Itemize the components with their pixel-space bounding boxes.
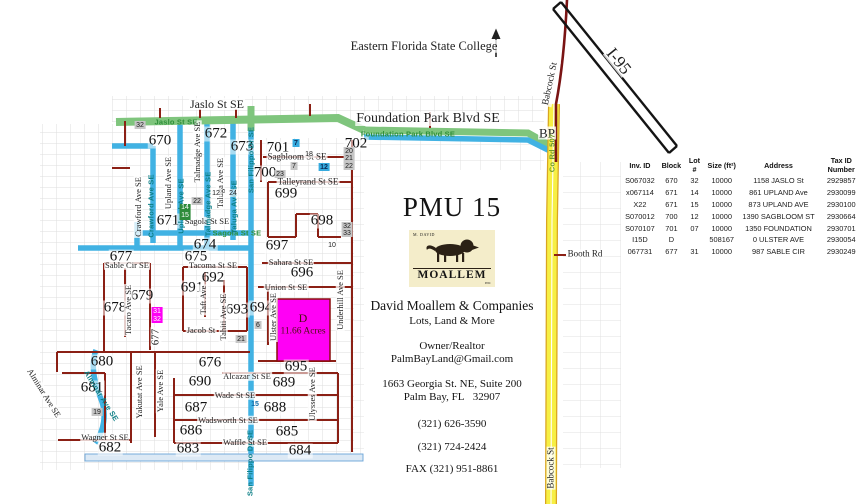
map-flyer-page: { "colors":{"road_red":"#8b2015","road_b… (0, 0, 864, 504)
street-label-tahiti-ave-se: Tahiti Ave SE (219, 293, 228, 342)
street-label-crawford-ave-se: Crawford Ave SE (134, 176, 143, 238)
table-cell: 1158 JASLO St (738, 175, 818, 187)
table-row: S07001270012100001390 SAGBLOOM ST2930664 (621, 210, 864, 222)
table-cell: S067032 (621, 175, 659, 187)
lot-marker-33: 33 (342, 229, 353, 237)
street-label-tacaro-ave-se: Tacaro Ave SE (124, 284, 133, 336)
lot-marker-23: 23 (275, 170, 286, 178)
contact-email: PalmBayLand@Gmail.com (352, 353, 552, 365)
block-684: 684 (288, 444, 313, 459)
table-cell: 671 (659, 199, 684, 211)
street-label-union-st-se: Union St SE (264, 283, 309, 292)
block-672: 672 (204, 127, 229, 142)
table-row: I15DD5081670 ULSTER AVE2930054 (621, 234, 864, 246)
table-cell: 2930054 (819, 234, 864, 246)
table-header-row: Inv. IDBlockLot #Size (ft²)AddressTax ID… (621, 155, 864, 175)
block-698: 698 (310, 214, 335, 229)
table-cell: 508167 (705, 234, 739, 246)
block-682: 682 (98, 441, 123, 456)
block-688: 688 (263, 401, 288, 416)
road-text-jaslo-st-se: Jaslo St SE (154, 118, 197, 126)
column-header-size-ft: Size (ft²) (705, 155, 739, 175)
table-cell: 2930100 (819, 199, 864, 211)
block-679: 679 (130, 289, 155, 304)
lot-marker-24: 24 (228, 189, 239, 197)
lot-marker-21: 21 (236, 335, 247, 343)
street-label-yakutat-ave-se: Yakutat Ave SE (135, 364, 144, 419)
lot-marker-15: 15 (180, 212, 191, 220)
lot-marker-22: 22 (192, 197, 203, 205)
block-692: 692 (201, 271, 226, 286)
table-row: S06703267032100001158 JASLO St2929857 (621, 175, 864, 187)
fax-number: FAX (321) 951-8861 (352, 463, 552, 475)
street-label-sahara-st-se: Sahara St SE (268, 258, 314, 267)
block-699: 699 (274, 187, 299, 202)
street-label-wagner-st-se: Wagner St SE (80, 433, 129, 442)
lot-marker-7: 7 (291, 162, 298, 170)
block-676: 676 (198, 356, 223, 371)
table-row: x0671146711410000861 UPLAND Ave2930099 (621, 187, 864, 199)
address-line1: 1663 Georgia St. NE, Suite 200 (352, 378, 552, 390)
block-697: 697 (265, 239, 290, 254)
table-cell: 1350 FOUNDATION (738, 222, 818, 234)
info-panel: PMU 15 M. DAVID MOALLEM INC David Moalle… (352, 192, 552, 475)
street-label-wade-st-se: Wade St SE (214, 391, 256, 400)
street-label-ulster-ave-se: Ulster Ave SE (269, 292, 278, 342)
lot-marker-32: 32 (152, 315, 163, 323)
table-cell: 10000 (705, 210, 739, 222)
lot-marker-32: 32 (135, 121, 146, 129)
table-cell: 2930701 (819, 222, 864, 234)
street-label-i-95: I-95 (603, 44, 635, 78)
table-cell: 701 (659, 222, 684, 234)
road-text-crawford-ave-se: Crawford Ave SE (147, 174, 155, 237)
block-696: 696 (290, 266, 315, 281)
table-cell: 067731 (621, 246, 659, 258)
table-cell: X22 (621, 199, 659, 211)
column-header-inv-id: Inv. ID (621, 155, 659, 175)
phone-number-2: (321) 724-2424 (352, 441, 552, 453)
street-label-alcazar-st-se: Alcazar St SE (222, 372, 272, 381)
table-cell: 10000 (705, 199, 739, 211)
table-cell: 15 (684, 199, 705, 211)
phone-number-1: (321) 626-3590 (352, 418, 552, 430)
lot-marker-6: 6 (255, 321, 262, 329)
block-683: 683 (176, 442, 201, 457)
road-text-san-filippo-dr-se: San Filippo Dr SE (246, 430, 254, 496)
block-686: 686 (179, 424, 204, 439)
table-cell (684, 234, 705, 246)
street-label-taluga-ave-se: Taluga Ave SE (216, 157, 225, 209)
table-cell: 2930099 (819, 187, 864, 199)
column-header-lot: Lot # (684, 155, 705, 175)
street-label-sable-cir-se: Sable Cir SE (104, 261, 150, 270)
table-cell: 2930249 (819, 246, 864, 258)
company-tagline: Lots, Land & More (352, 315, 552, 327)
lot-marker-31: 31 (152, 307, 163, 315)
parcel-area: 11.66 Acres (280, 327, 325, 337)
street-label-talmadge-ave-se: Talmadge Ave SE (193, 121, 202, 184)
street-label-upland-ave-se: Upland Ave SE (164, 156, 173, 210)
company-logo: M. DAVID MOALLEM INC (409, 230, 495, 287)
table-cell: 0 ULSTER AVE (738, 234, 818, 246)
table-cell: 861 UPLAND Ave (738, 187, 818, 199)
table-cell: 31 (684, 246, 705, 258)
column-header-tax-id-number: Tax ID Number (819, 155, 864, 175)
street-label-talleyrand-st-se: Talleyrand St SE (277, 178, 340, 187)
company-name: David Moallem & Companies (352, 298, 552, 314)
column-header-block: Block (659, 155, 684, 175)
street-label-tacoma-st-se: Tacoma St SE (188, 261, 238, 270)
street-label-wadsworth-st-se: Wadsworth St SE (197, 416, 259, 425)
street-label-yale-ave-se: Yale Ave SE (156, 369, 165, 413)
owner-role: Owner/Realtor (352, 340, 552, 352)
table-cell: 10000 (705, 246, 739, 258)
table-cell: 2929857 (819, 175, 864, 187)
table-cell: 677 (659, 246, 684, 258)
road-text-san-filippo-dr-se: San Filippo Dr SE (247, 127, 255, 193)
table-cell: 32 (684, 175, 705, 187)
address-line2: Palm Bay, FL 32907 (352, 391, 552, 403)
logo-wordmark: MOALLEM (413, 268, 491, 282)
table-cell: S070012 (621, 210, 659, 222)
lot-marker-10: 10 (327, 241, 338, 249)
lot-marker-14: 14 (180, 204, 191, 212)
block-690: 690 (188, 375, 213, 390)
table-cell: 873 UPLAND AVE (738, 199, 818, 211)
table-cell: 671 (659, 187, 684, 199)
lot-marker-12: 12 (211, 189, 222, 197)
table-cell: 670 (659, 175, 684, 187)
street-label-booth-rd: Booth Rd (567, 250, 604, 259)
block-689: 689 (272, 376, 297, 391)
street-label-sagbloom-st-se: Sagbloom St SE (266, 153, 327, 162)
table-row: S07010770107100001350 FOUNDATION2930701 (621, 222, 864, 234)
lot-marker-7: 7 (293, 139, 300, 147)
lot-marker-12: 12 (319, 163, 330, 171)
street-label-taft-ave: Taft Ave (199, 285, 208, 316)
table-row: X226711510000873 UPLAND AVE2930100 (621, 199, 864, 211)
parcel-letter: D (299, 312, 308, 324)
table-cell: 2930664 (819, 210, 864, 222)
street-label-foundation-park-blvd-se: Foundation Park Blvd SE (355, 112, 501, 126)
logo-inc-text: INC (413, 282, 491, 286)
table-cell: x067114 (621, 187, 659, 199)
block-695: 695 (284, 360, 309, 375)
lot-marker-22: 22 (344, 162, 355, 170)
table-cell: 12 (684, 210, 705, 222)
block-680: 680 (90, 355, 115, 370)
road-text-co-rd-507: Co Rd 507 (548, 134, 556, 172)
street-label-ulysses-ave-se: Ulysses Ave SE (308, 366, 317, 422)
table-cell: 10000 (705, 187, 739, 199)
page-title: PMU 15 (352, 192, 552, 223)
table-cell: I15D (621, 234, 659, 246)
street-label-jacob-st: Jacob St (186, 326, 217, 335)
road-text-foundation-park-blvd-se: Foundation Park Blvd SE (361, 130, 455, 138)
street-label-babcock-st: Babcock St (542, 61, 561, 108)
table-row: 0677316773110000987 SABLE CIR2930249 (621, 246, 864, 258)
street-label-677: 677 (151, 328, 162, 347)
table-cell: 700 (659, 210, 684, 222)
street-label-alminar-ave-se: Alminar Ave SE (25, 366, 63, 419)
table-cell: 10000 (705, 222, 739, 234)
block-687: 687 (184, 401, 209, 416)
lot-marker-18: 18 (304, 150, 315, 158)
column-header-address: Address (738, 155, 818, 175)
road-text-talmadge-ave-se: Talmadge Ave SE (204, 172, 212, 237)
lot-marker-19: 19 (92, 408, 103, 416)
block-670: 670 (148, 134, 173, 149)
table-cell: 14 (684, 187, 705, 199)
table-cell: 10000 (705, 175, 739, 187)
block-685: 685 (275, 425, 300, 440)
block-693: 693 (225, 303, 250, 318)
inventory-table: Inv. IDBlockLot #Size (ft²)AddressTax ID… (621, 155, 864, 257)
lion-icon (420, 237, 484, 263)
table-cell: S070107 (621, 222, 659, 234)
street-label-underhill-ave-se: Underhill Ave SE (336, 269, 345, 331)
block-700: 700 (253, 166, 278, 181)
table-cell: 1390 SAGBLOOM ST (738, 210, 818, 222)
lot-marker-15: 15 (250, 400, 261, 408)
street-label-jaslo-st-se: Jaslo St SE (189, 98, 245, 110)
table-cell: D (659, 234, 684, 246)
street-label-eastern-florida-state-college: Eastern Florida State College (350, 40, 499, 53)
table-cell: 987 SABLE CIR (738, 246, 818, 258)
table-cell: 07 (684, 222, 705, 234)
